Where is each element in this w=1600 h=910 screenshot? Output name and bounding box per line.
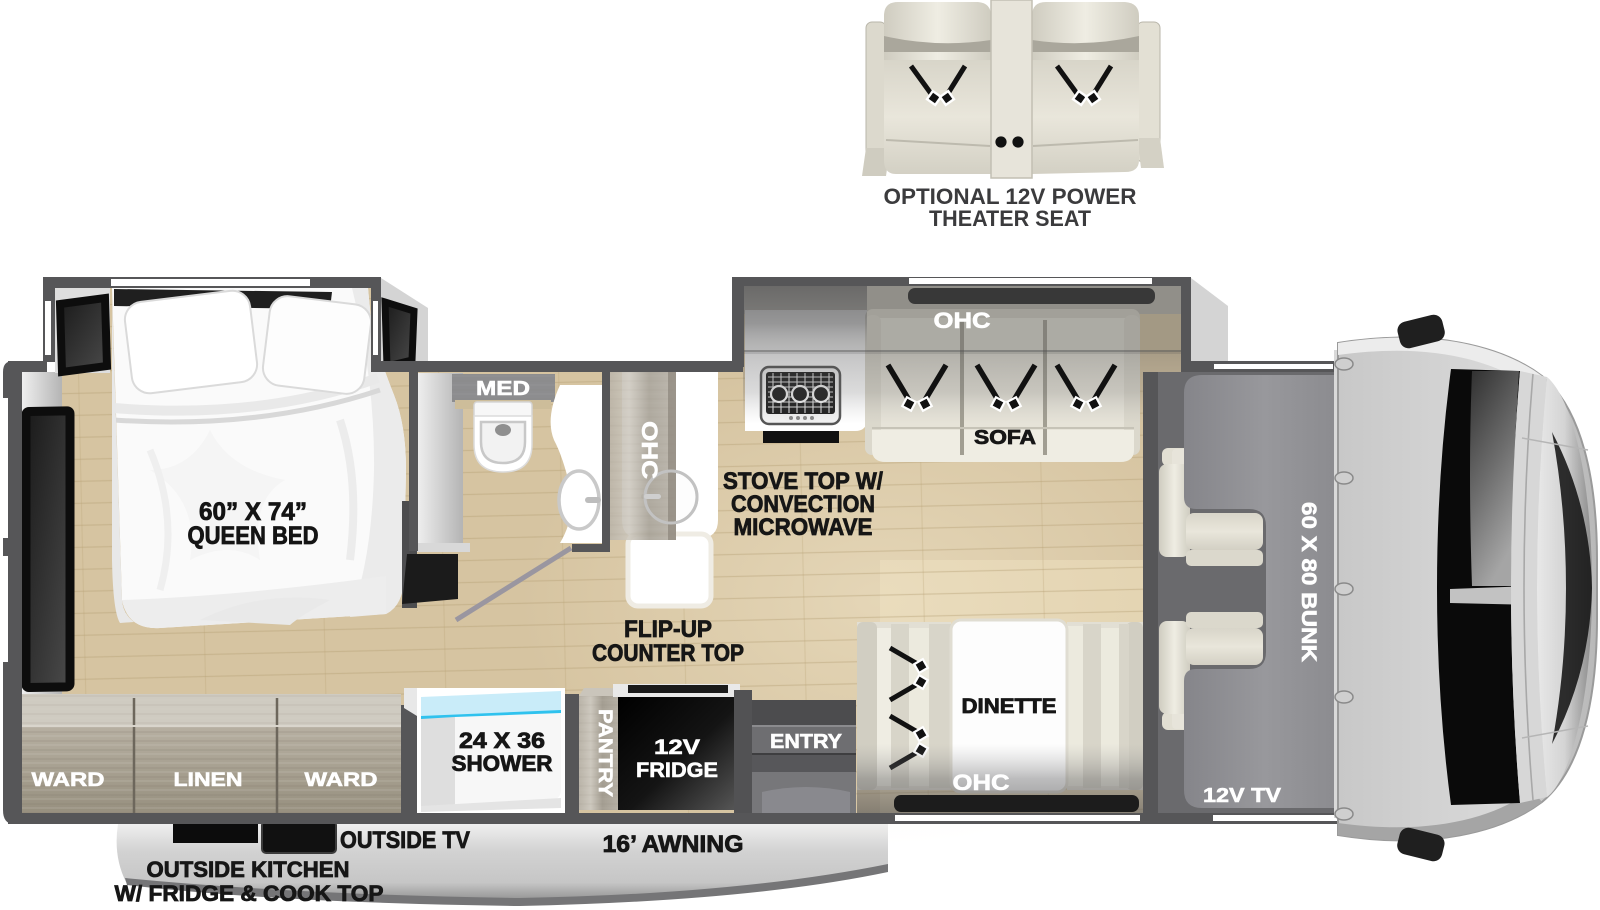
svg-text:OHC: OHC <box>953 770 1010 795</box>
svg-text:12V: 12V <box>654 736 700 759</box>
svg-text:16’ AWNING: 16’ AWNING <box>603 831 744 858</box>
svg-text:W/ FRIDGE & COOK TOP: W/ FRIDGE & COOK TOP <box>115 881 384 906</box>
svg-text:OUTSIDE TV: OUTSIDE TV <box>340 827 470 854</box>
svg-text:12V TV: 12V TV <box>1203 785 1282 807</box>
svg-text:LINEN: LINEN <box>174 770 243 791</box>
svg-text:WARD: WARD <box>32 770 105 791</box>
svg-text:FLIP-UP: FLIP-UP <box>624 616 712 643</box>
svg-text:WARD: WARD <box>305 770 378 791</box>
svg-text:THEATER SEAT: THEATER SEAT <box>929 206 1092 231</box>
svg-text:24 X 36: 24 X 36 <box>459 728 545 753</box>
svg-text:SHOWER: SHOWER <box>452 751 553 776</box>
svg-text:COUNTER TOP: COUNTER TOP <box>592 640 744 667</box>
svg-text:60 X 80 BUNK: 60 X 80 BUNK <box>1297 502 1320 662</box>
svg-text:OHC: OHC <box>934 308 991 333</box>
svg-text:PANTRY: PANTRY <box>594 709 615 797</box>
svg-text:DINETTE: DINETTE <box>962 695 1057 718</box>
svg-text:SOFA: SOFA <box>974 427 1036 449</box>
svg-text:OHC: OHC <box>637 421 662 479</box>
svg-text:MICROWAVE: MICROWAVE <box>734 514 873 541</box>
svg-text:OUTSIDE KITCHEN: OUTSIDE KITCHEN <box>147 857 350 882</box>
svg-text:QUEEN BED: QUEEN BED <box>188 522 319 550</box>
svg-text:ENTRY: ENTRY <box>770 731 843 753</box>
svg-text:MED: MED <box>476 378 530 400</box>
svg-text:FRIDGE: FRIDGE <box>636 759 718 782</box>
